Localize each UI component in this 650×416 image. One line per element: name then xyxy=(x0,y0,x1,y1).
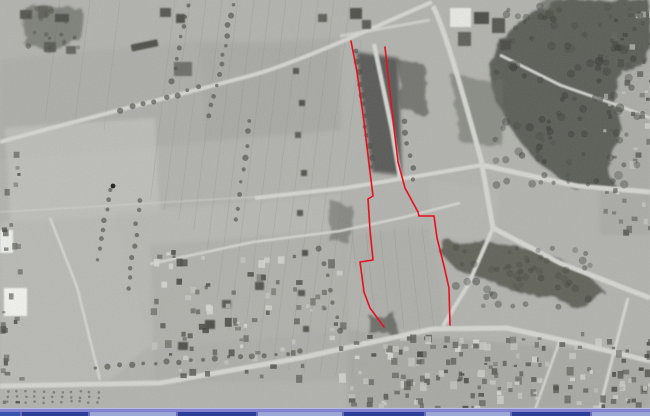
desktop-screenshot xyxy=(0,0,650,416)
taskbar-buttons xyxy=(0,412,650,416)
taskbar[interactable] xyxy=(0,408,650,416)
aerial-photo-canvas xyxy=(0,0,650,408)
taskbar-button[interactable] xyxy=(256,412,342,416)
taskbar-button[interactable] xyxy=(0,412,20,416)
aerial-photo xyxy=(0,0,650,408)
taskbar-button[interactable] xyxy=(176,412,256,416)
taskbar-button[interactable] xyxy=(20,412,88,416)
taskbar-button[interactable] xyxy=(342,412,424,416)
taskbar-button[interactable] xyxy=(88,412,176,416)
taskbar-button[interactable] xyxy=(424,412,510,416)
taskbar-button[interactable] xyxy=(510,412,590,416)
grain-overlay-light xyxy=(0,0,650,408)
taskbar-button[interactable] xyxy=(590,412,650,416)
